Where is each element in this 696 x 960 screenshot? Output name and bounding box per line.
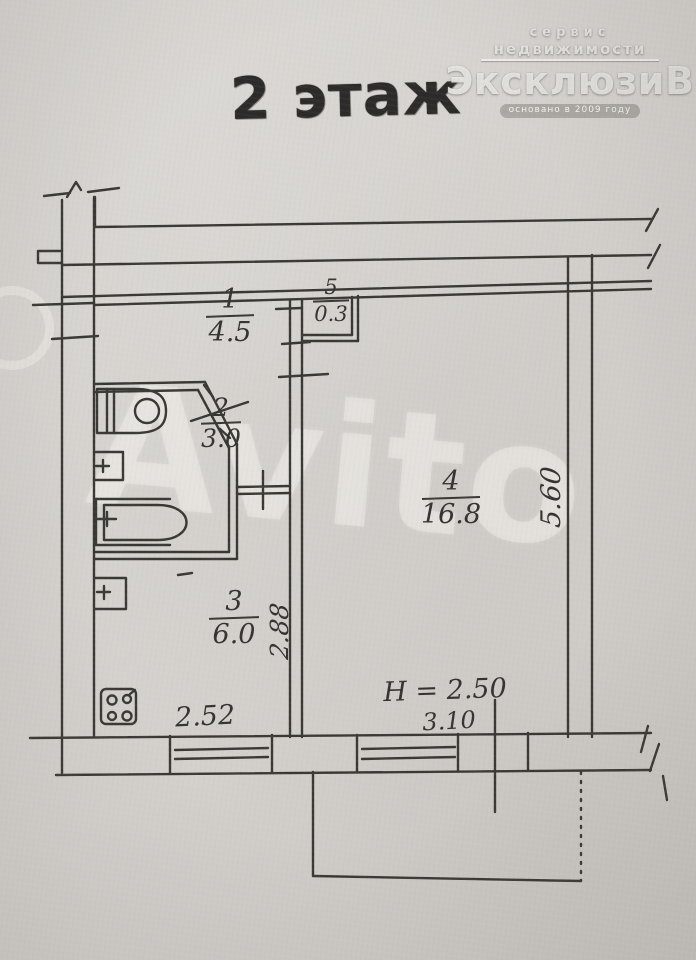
stove-fixture: [101, 689, 136, 724]
room-number: 5: [324, 277, 337, 298]
dimension-living-depth: 5.60: [521, 463, 581, 531]
left-wall: [38, 197, 98, 773]
dimension-kitchen-width: 2.52: [167, 697, 243, 735]
dimension-living-width: 3.10: [412, 704, 485, 738]
middle-wall: [279, 300, 328, 737]
dimension-kitchen-depth: 2.88: [249, 597, 309, 665]
toilet-fixture: [97, 389, 166, 433]
floorplan-photo: Avito 2 этаж сервис недвижимости Эксклюз…: [0, 0, 696, 960]
room-number: 4: [442, 468, 459, 495]
bathroom-sink-fixture: [94, 452, 123, 480]
room-number: 2: [213, 395, 229, 420]
room-label-living-room: 4 16.8: [414, 468, 488, 528]
floor-plan-drawing: [0, 0, 696, 960]
corridor-wall: [44, 182, 660, 268]
room-label-bathroom: 2 3.0: [192, 395, 250, 451]
room-area: 4.5: [209, 319, 252, 346]
room-label-closet: 5 0.3: [306, 277, 356, 325]
room-area: 16.8: [421, 501, 481, 528]
room-number: 3: [225, 588, 242, 615]
room-area: 0.3: [314, 304, 347, 325]
kitchen-sink-fixture: [95, 573, 192, 609]
dimension-ceiling-height: H = 2.50: [379, 672, 510, 709]
kitchen-window: [170, 735, 272, 773]
room-label-hallway: 1 4.5: [200, 286, 260, 346]
bathtub-fixture: [96, 499, 187, 545]
room-number: 1: [221, 286, 238, 313]
room-area: 3.0: [201, 426, 241, 451]
bottom-wall: [30, 726, 667, 800]
balcony-outline: [313, 772, 581, 881]
